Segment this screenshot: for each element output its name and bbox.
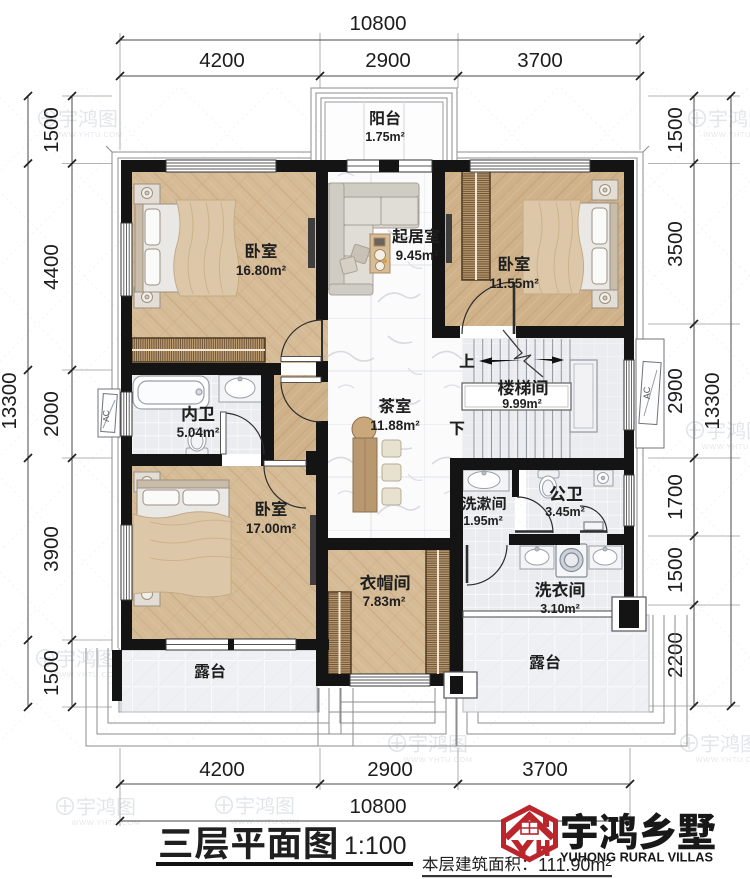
svg-text:3.45m²: 3.45m² xyxy=(545,505,585,519)
svg-text:11.88m²: 11.88m² xyxy=(370,418,420,433)
svg-text:16.80m²: 16.80m² xyxy=(236,263,287,278)
svg-text:2900: 2900 xyxy=(664,368,687,414)
svg-text:3900: 3900 xyxy=(40,526,63,572)
svg-text:5.04m²: 5.04m² xyxy=(177,425,220,440)
svg-text:3700: 3700 xyxy=(522,758,568,781)
svg-text:AC: AC xyxy=(642,386,652,399)
svg-text:1500: 1500 xyxy=(664,107,687,153)
svg-text:11.55m²: 11.55m² xyxy=(489,276,539,291)
svg-text:2000: 2000 xyxy=(40,391,63,437)
svg-text:4200: 4200 xyxy=(199,758,245,781)
svg-text:1.95m²: 1.95m² xyxy=(463,514,503,528)
svg-text:1500: 1500 xyxy=(40,107,63,153)
svg-text:9.45m²: 9.45m² xyxy=(396,248,439,263)
svg-text:3.10m²: 3.10m² xyxy=(540,602,580,616)
svg-text:4400: 4400 xyxy=(40,244,63,290)
svg-text:2900: 2900 xyxy=(367,758,413,781)
svg-text:13300: 13300 xyxy=(0,372,21,429)
svg-text:1:100: 1:100 xyxy=(344,832,407,860)
svg-text:1500: 1500 xyxy=(664,547,687,593)
svg-text:2900: 2900 xyxy=(365,49,411,72)
svg-text:7.83m²: 7.83m² xyxy=(363,594,406,609)
svg-text:3500: 3500 xyxy=(664,221,687,267)
svg-text:9.99m²: 9.99m² xyxy=(502,397,542,411)
svg-text:YUHONG RURAL VILLAS: YUHONG RURAL VILLAS xyxy=(560,850,713,865)
svg-text:1700: 1700 xyxy=(664,474,687,520)
svg-text:10800: 10800 xyxy=(349,795,406,818)
svg-text:10800: 10800 xyxy=(349,12,406,35)
svg-text:AC: AC xyxy=(101,410,111,422)
svg-text:1.75m²: 1.75m² xyxy=(365,130,405,144)
svg-text:4200: 4200 xyxy=(199,49,245,72)
svg-text:17.00m²: 17.00m² xyxy=(246,521,297,536)
svg-text:1500: 1500 xyxy=(40,650,63,696)
svg-text:13300: 13300 xyxy=(701,372,724,429)
svg-text:3700: 3700 xyxy=(517,49,563,72)
